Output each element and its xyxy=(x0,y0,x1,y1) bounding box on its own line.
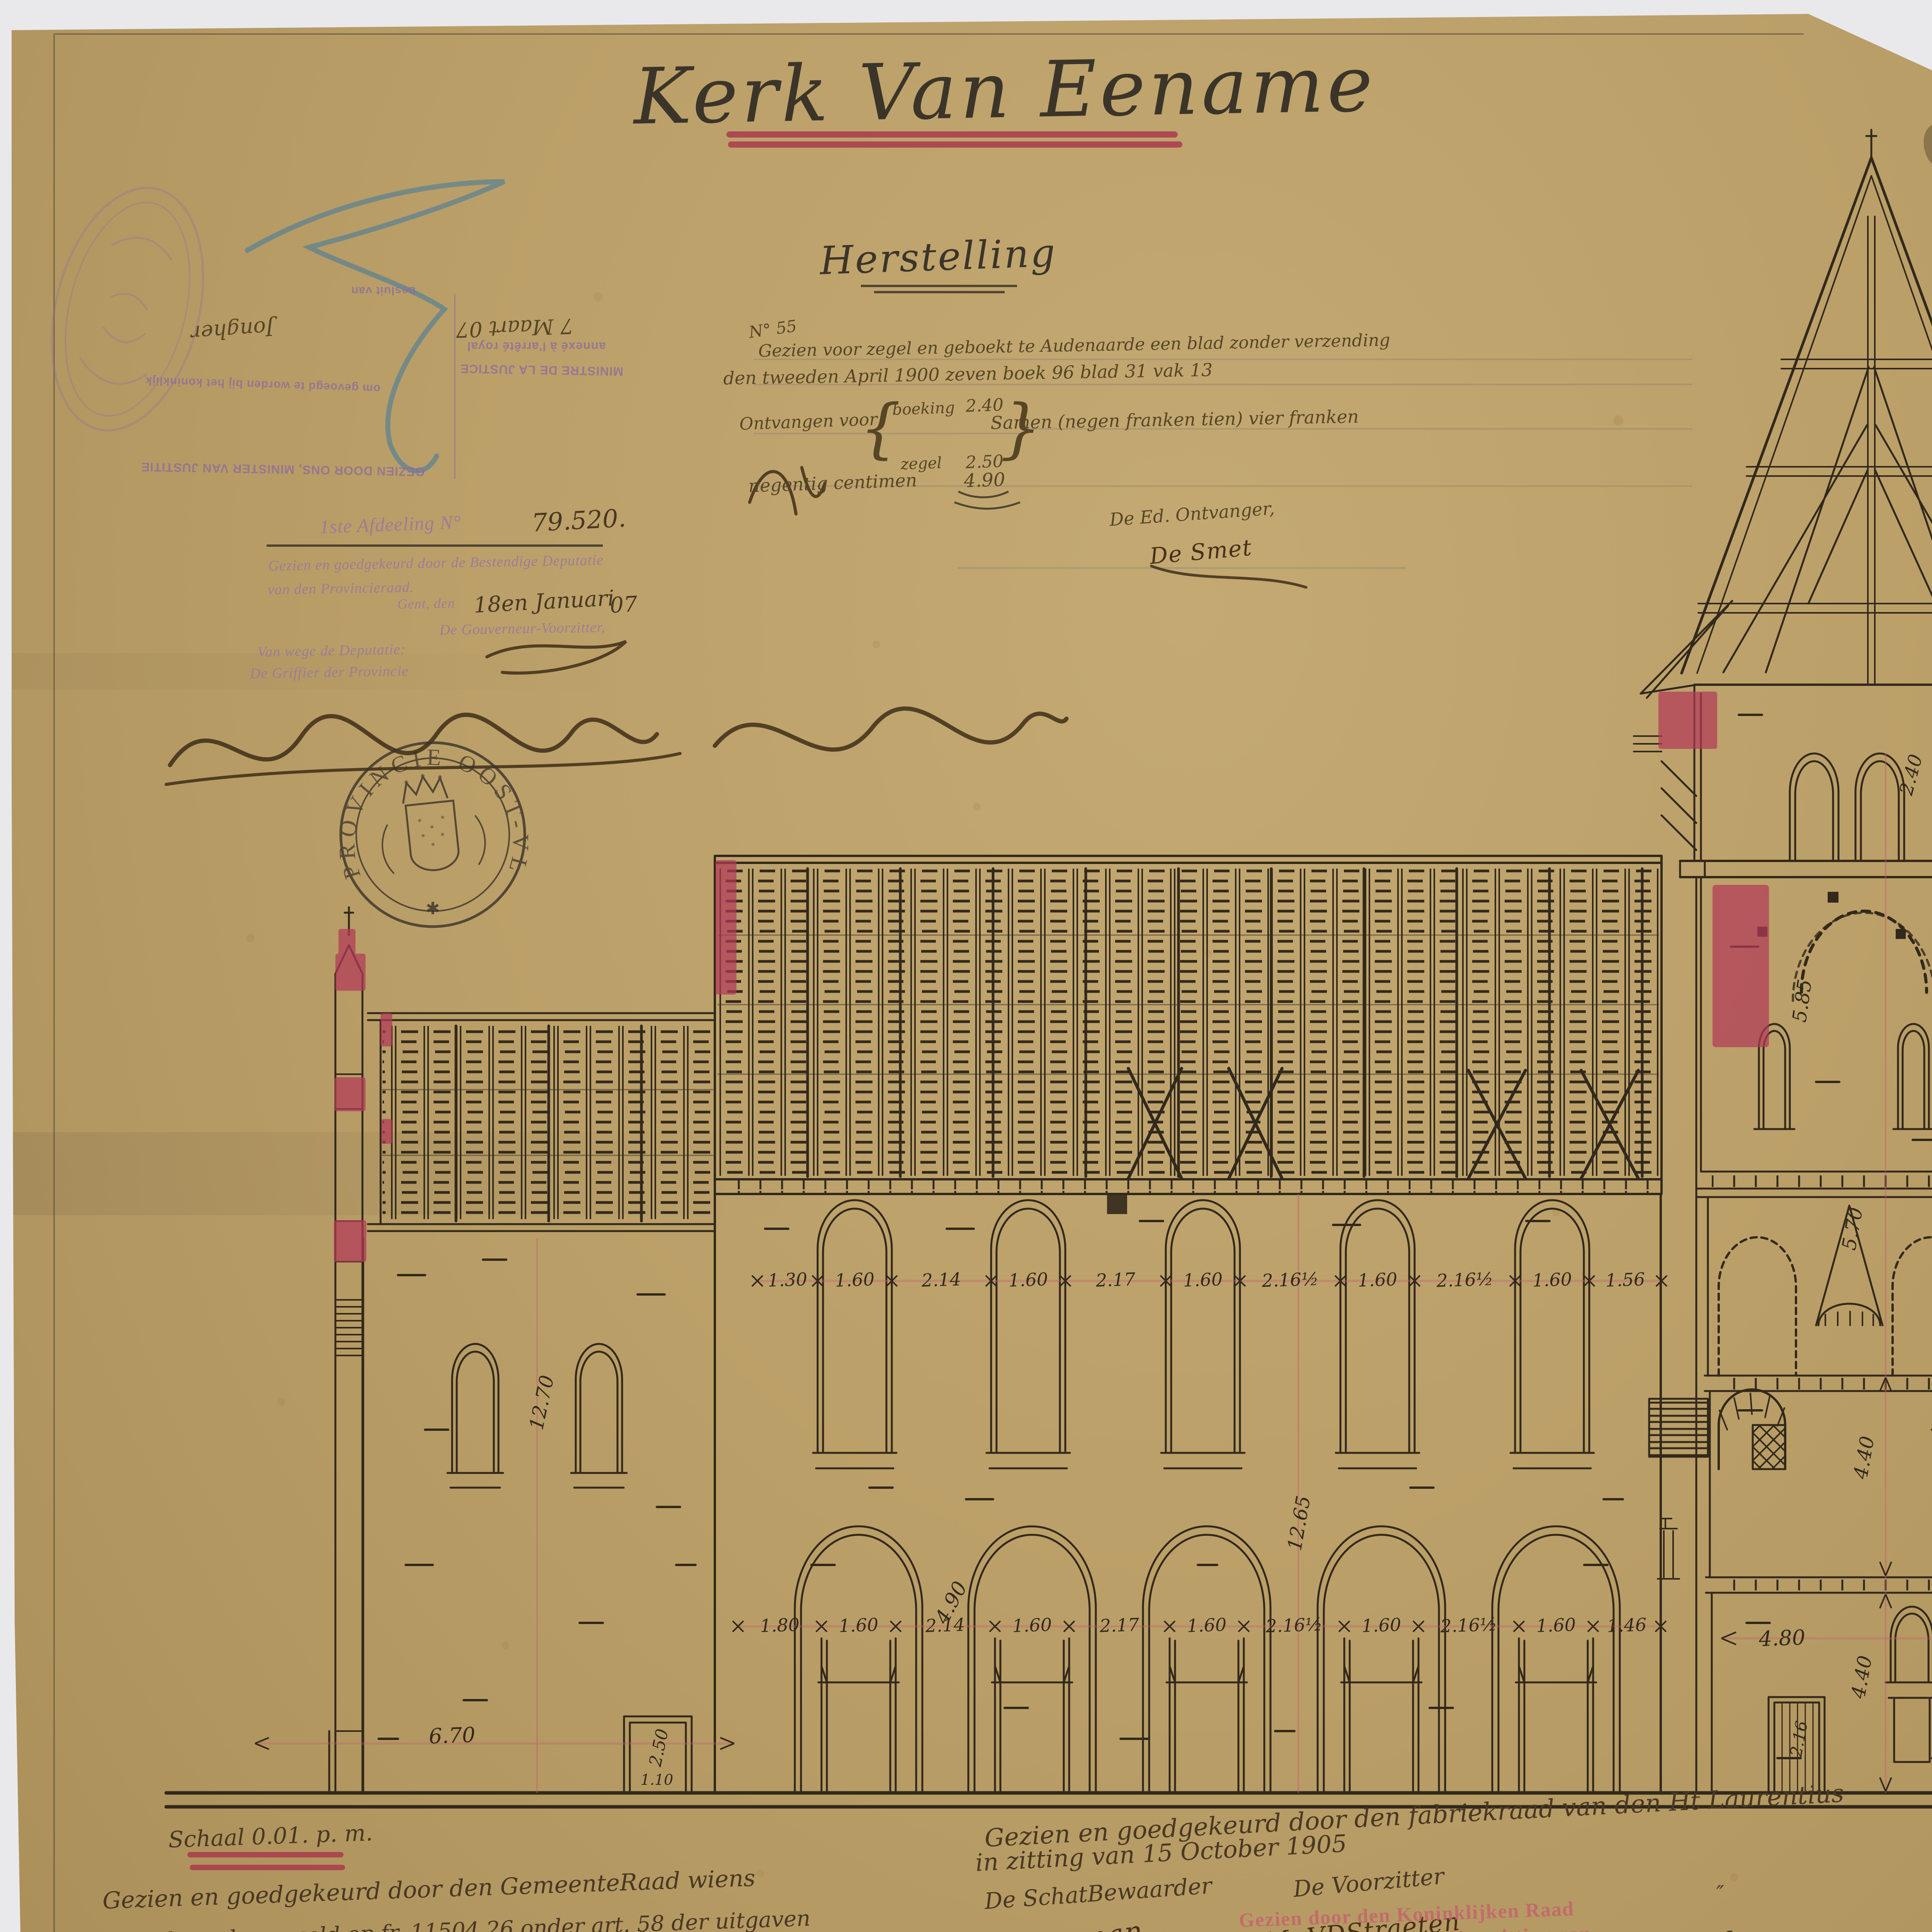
scale-note: Schaal 0.01. p. m. xyxy=(168,1821,373,1851)
deputation-line: De Gouverneur-Voorzitter, xyxy=(439,620,605,637)
deputation-line: Van wege de Deputatie: xyxy=(257,642,406,660)
dimension-label: 1.60 xyxy=(1532,1270,1572,1289)
dimension-label: 1.60 xyxy=(838,1616,879,1635)
chairman-label: De Voorzitter xyxy=(1293,1865,1445,1900)
receipt-amount: 2.50 xyxy=(965,453,1003,471)
ministry-stamp-line: besluit van xyxy=(351,285,416,296)
dimension-label: 1.60 xyxy=(1536,1616,1576,1635)
dimension-label: 2.14 xyxy=(921,1270,961,1289)
dimension-label: 1.60 xyxy=(1008,1270,1048,1289)
dimension-label: 4.90 xyxy=(932,1578,971,1628)
place-eecloo: Eecloo xyxy=(1669,1926,1770,1932)
deputation-date: 18en Januari xyxy=(473,588,615,617)
ministry-stamp-line: GEZIEN DOOR ONS, MINISTER VAN JUSTITIE xyxy=(141,461,425,478)
dimension-label: 2.16½ xyxy=(1265,1615,1323,1635)
dimension-label: 1.10 xyxy=(641,1772,673,1787)
dimension-label: 1.60 xyxy=(1357,1270,1398,1289)
dimension-label: 1.60 xyxy=(1183,1270,1223,1289)
dimension-label: 2.16½ xyxy=(1436,1270,1494,1289)
dimension-label: 1.46 xyxy=(1607,1616,1647,1635)
sheet-subtitle: Herstelling xyxy=(819,233,1057,280)
division-number: 79.520. xyxy=(531,506,626,536)
dimension-label: 2.17 xyxy=(1099,1616,1139,1635)
deputation-year: 07 xyxy=(609,594,638,617)
upside-down-handwriting: Jongher xyxy=(190,317,275,344)
receipt-line: boeking xyxy=(892,400,955,418)
scanned-sheet-stage: PROVINCIE OOST-VLAANDEREN xyxy=(0,0,1932,1932)
receipt-line: Samen (negen franken tien) vier franken xyxy=(990,408,1359,432)
council-approval-line: Gezien en goedgekeurd door den GemeenteR… xyxy=(102,1867,756,1913)
dimension-label: 1.60 xyxy=(1012,1616,1052,1635)
dimension-label: 12.65 xyxy=(1285,1494,1313,1552)
signature-leyman: J. Leyman xyxy=(997,1917,1145,1932)
annotation-layer: 26152 · 93/12DKerk Van EenameHerstelling… xyxy=(0,0,1932,1932)
dimension-label: 4.80 xyxy=(1759,1627,1806,1650)
dimension-label: 4.40 xyxy=(1851,1435,1878,1480)
council-approval-line: aandeel werd geregeld op fr. 11504.26 on… xyxy=(87,1908,811,1932)
foxing-spots xyxy=(0,0,6,6)
dimension-label: 2.16½ xyxy=(1440,1615,1498,1635)
date-october-1905: october 1905 xyxy=(1855,1928,1932,1932)
dimension-label: 1.60 xyxy=(1187,1616,1227,1635)
ditto-mark: ″ xyxy=(1716,1883,1724,1904)
dimension-label: 2.17 xyxy=(1095,1270,1136,1289)
dimension-label: 5.70 xyxy=(1839,1206,1866,1252)
deputation-line: De Griffier der Provincie xyxy=(250,663,408,681)
receipt-line: den tweeden April 1900 zeven boek 96 bla… xyxy=(723,361,1213,387)
dimension-label: 1.80 xyxy=(760,1616,800,1635)
deputation-line: Gezien en goedgekeurd door de Bestendige… xyxy=(268,553,604,573)
receipt-line: Ontvangen voor xyxy=(739,411,878,433)
receipt-line: negentig centimen xyxy=(748,471,917,495)
dimension-label: 4.40 xyxy=(1849,1654,1875,1700)
dimension-label: 2.16 xyxy=(1788,1719,1810,1758)
dimension-label: 2.50 xyxy=(647,1728,671,1768)
dimension-label: 2.40 xyxy=(1897,752,1925,797)
deputation-line: Gent, den xyxy=(397,596,455,611)
ministry-stamp-line: MINISTRE DE LA JUSTICE xyxy=(460,362,623,378)
ministry-stamp-line: om gevoegd te worden bij het koninklijk xyxy=(145,374,381,394)
dimension-label: 1.30 xyxy=(767,1270,808,1289)
treasurer-label: De SchatBewaarder xyxy=(984,1874,1213,1913)
signature-desmet: De Smet xyxy=(1149,536,1253,568)
dimension-label: 1.60 xyxy=(1361,1616,1401,1635)
ministry-stamp-line: annexé à l'arrêté royal xyxy=(467,340,606,353)
receipt-line: Gezien voor zegel en geboekt te Audenaar… xyxy=(758,332,1390,360)
church-council-line: Gezien en goedgekeurd door den fabriekra… xyxy=(984,1781,1844,1851)
dimension-label: 6.70 xyxy=(429,1725,476,1747)
dimension-label: 5.85 xyxy=(1789,978,1815,1023)
upside-down-handwriting: 7 Maart 07 xyxy=(456,315,574,340)
receipt-signoff: De Ed. Ontvanger, xyxy=(1109,499,1275,529)
dimension-label: 1.56 xyxy=(1605,1270,1645,1289)
deputation-line: van den Provincieraad. xyxy=(268,580,414,597)
dimension-label: 12.70 xyxy=(527,1374,557,1432)
receipt-number: N° 55 xyxy=(748,318,798,341)
receipt-total: 4.90 xyxy=(964,470,1005,490)
division-heading: 1ste Afdeeling N° xyxy=(319,512,461,537)
dimension-label: 2.16½ xyxy=(1262,1270,1319,1289)
dimension-label: 1.60 xyxy=(835,1270,875,1289)
sheet-title: Kerk Van Eename xyxy=(633,46,1376,136)
drawing-sheet: PROVINCIE OOST-VLAANDEREN xyxy=(0,0,1932,1932)
stamp-star: ✱ xyxy=(426,900,440,917)
